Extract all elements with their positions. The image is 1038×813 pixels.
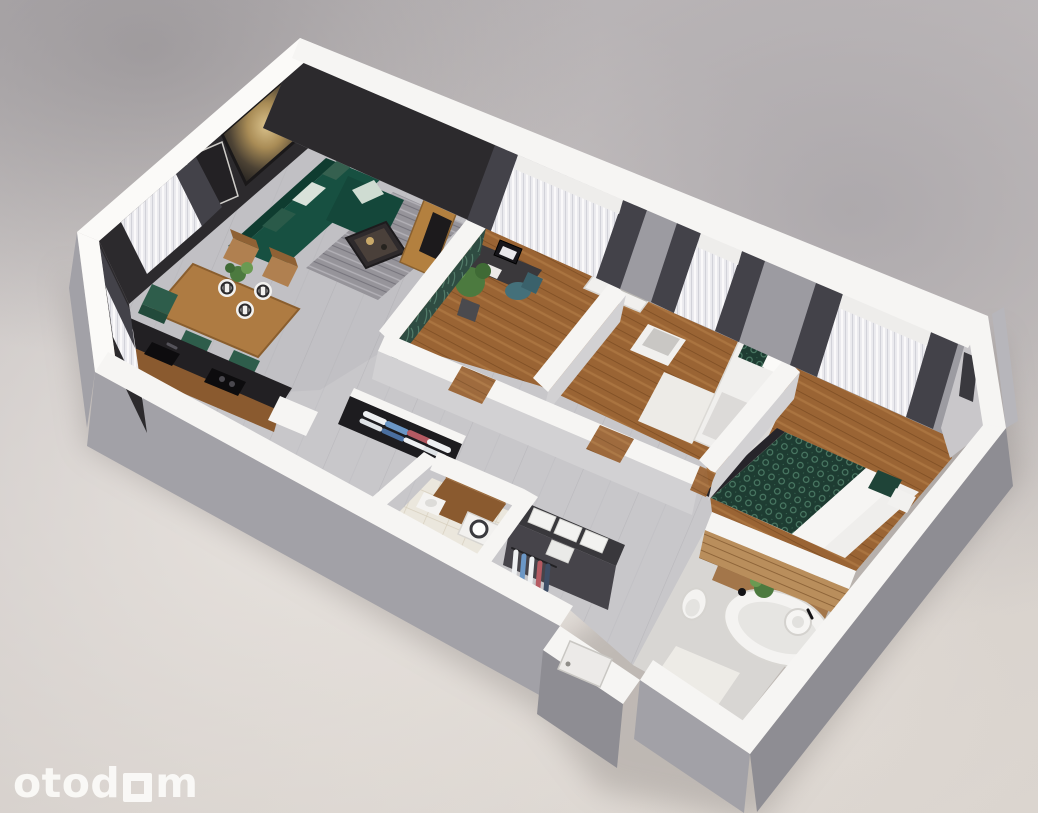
otodom-logo-text-suffix: m: [155, 763, 198, 804]
apartment-floor-plan: [0, 0, 1038, 813]
place-setting-icon: [218, 279, 236, 297]
floor-plan-render: otod m: [0, 0, 1038, 813]
tub-faucet: [738, 588, 746, 596]
place-setting-icon: [236, 301, 254, 319]
otodom-logo-text-prefix: otod: [13, 763, 120, 804]
place-setting-icon: [254, 282, 272, 300]
otodom-logo-square-icon: [123, 773, 152, 802]
bathroom-sink: [785, 609, 812, 635]
otodom-watermark: otod m: [13, 763, 199, 804]
